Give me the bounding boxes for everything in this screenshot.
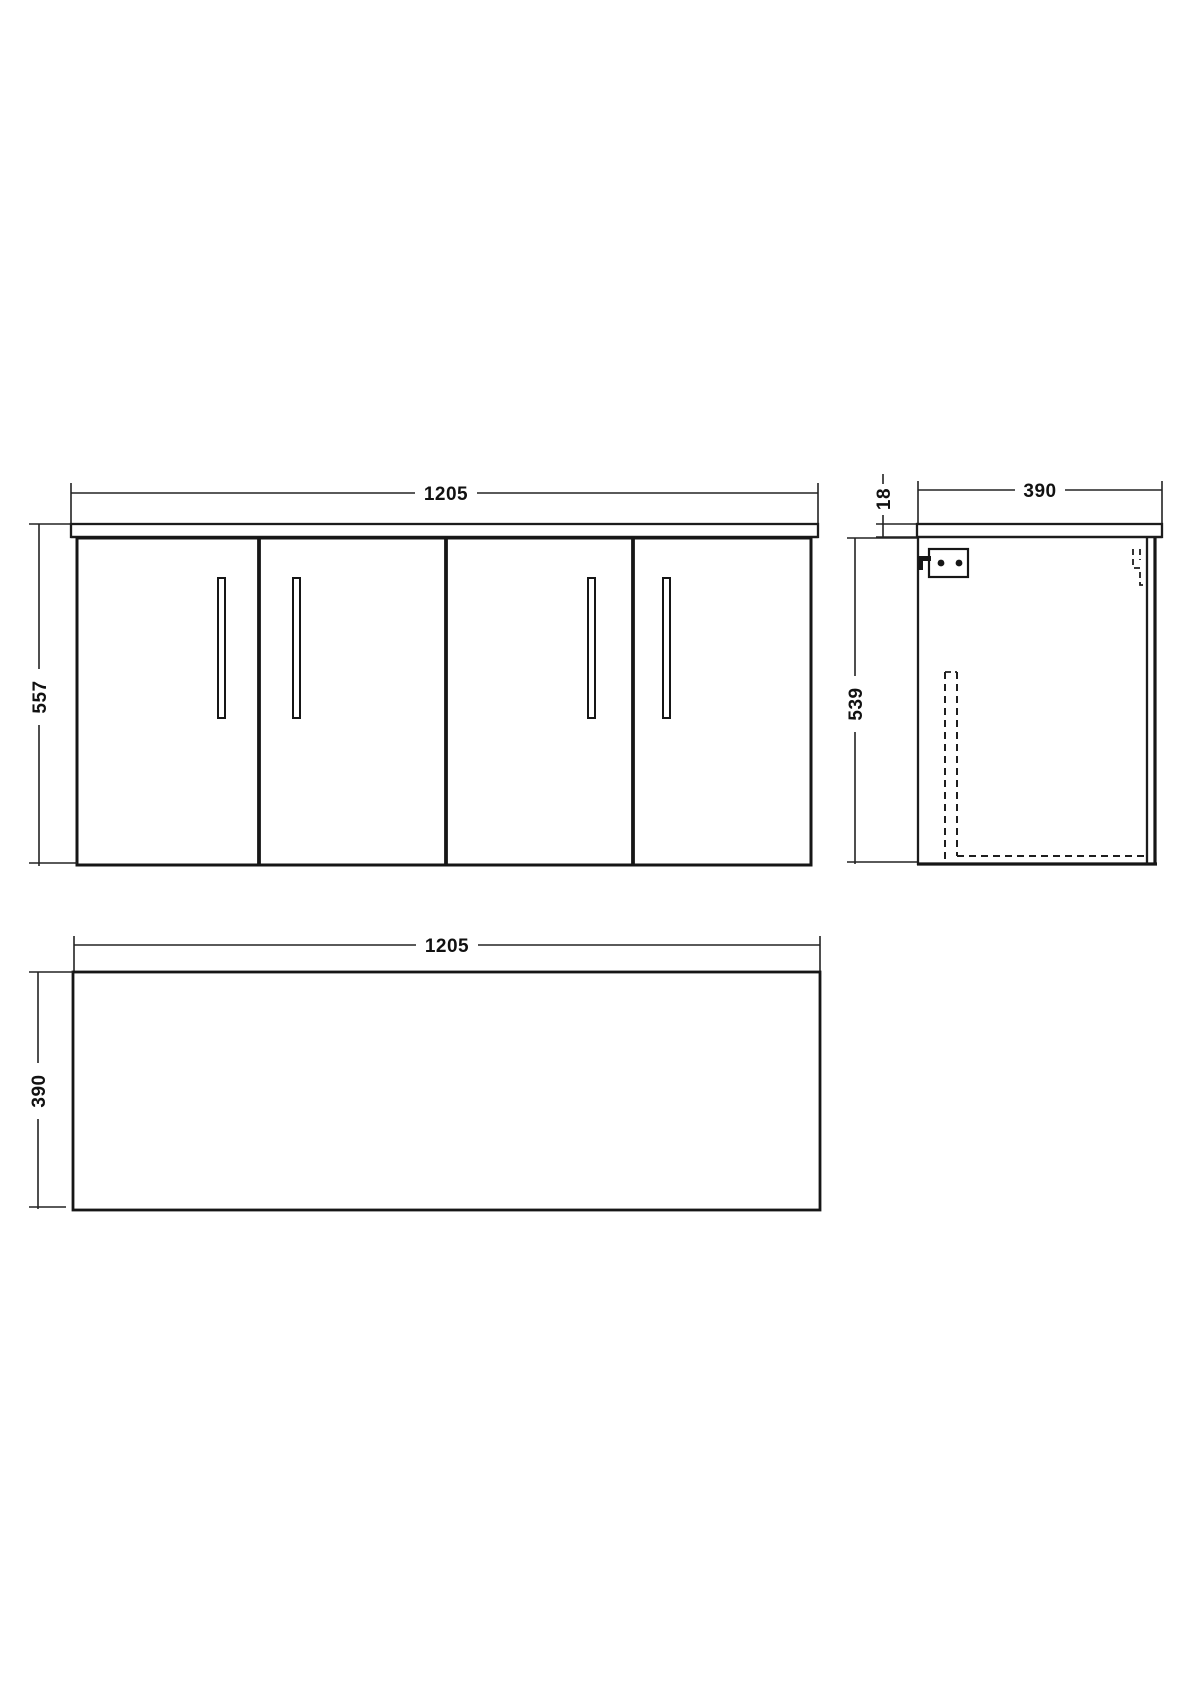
side-worktop-thickness-label: 18 [874,488,895,510]
side-height-label: 539 [846,687,867,720]
front-worktop [71,524,818,537]
side-view: 390 18 539 [845,474,1162,865]
side-wall-bracket-screw-1 [938,560,945,567]
front-view: 1205 557 [29,482,818,866]
front-door-handle-1 [218,578,225,718]
plan-view: 1205 390 [28,934,820,1210]
front-door-handle-2 [293,578,300,718]
drawing-canvas: 1205 557 390 18 [0,0,1200,1698]
plan-depth-label: 390 [29,1074,50,1107]
front-door-handle-4 [663,578,670,718]
vanity-technical-drawing: 1205 557 390 18 [0,0,1200,1698]
plan-width-label: 1205 [425,936,469,957]
front-door-handle-3 [588,578,595,718]
front-width-label: 1205 [424,484,468,505]
front-height-label: 557 [30,680,51,713]
side-depth-label: 390 [1023,481,1056,502]
front-carcass [77,538,811,865]
side-worktop [917,524,1162,537]
side-wall-bracket-screw-2 [956,560,963,567]
plan-outline [73,972,820,1210]
